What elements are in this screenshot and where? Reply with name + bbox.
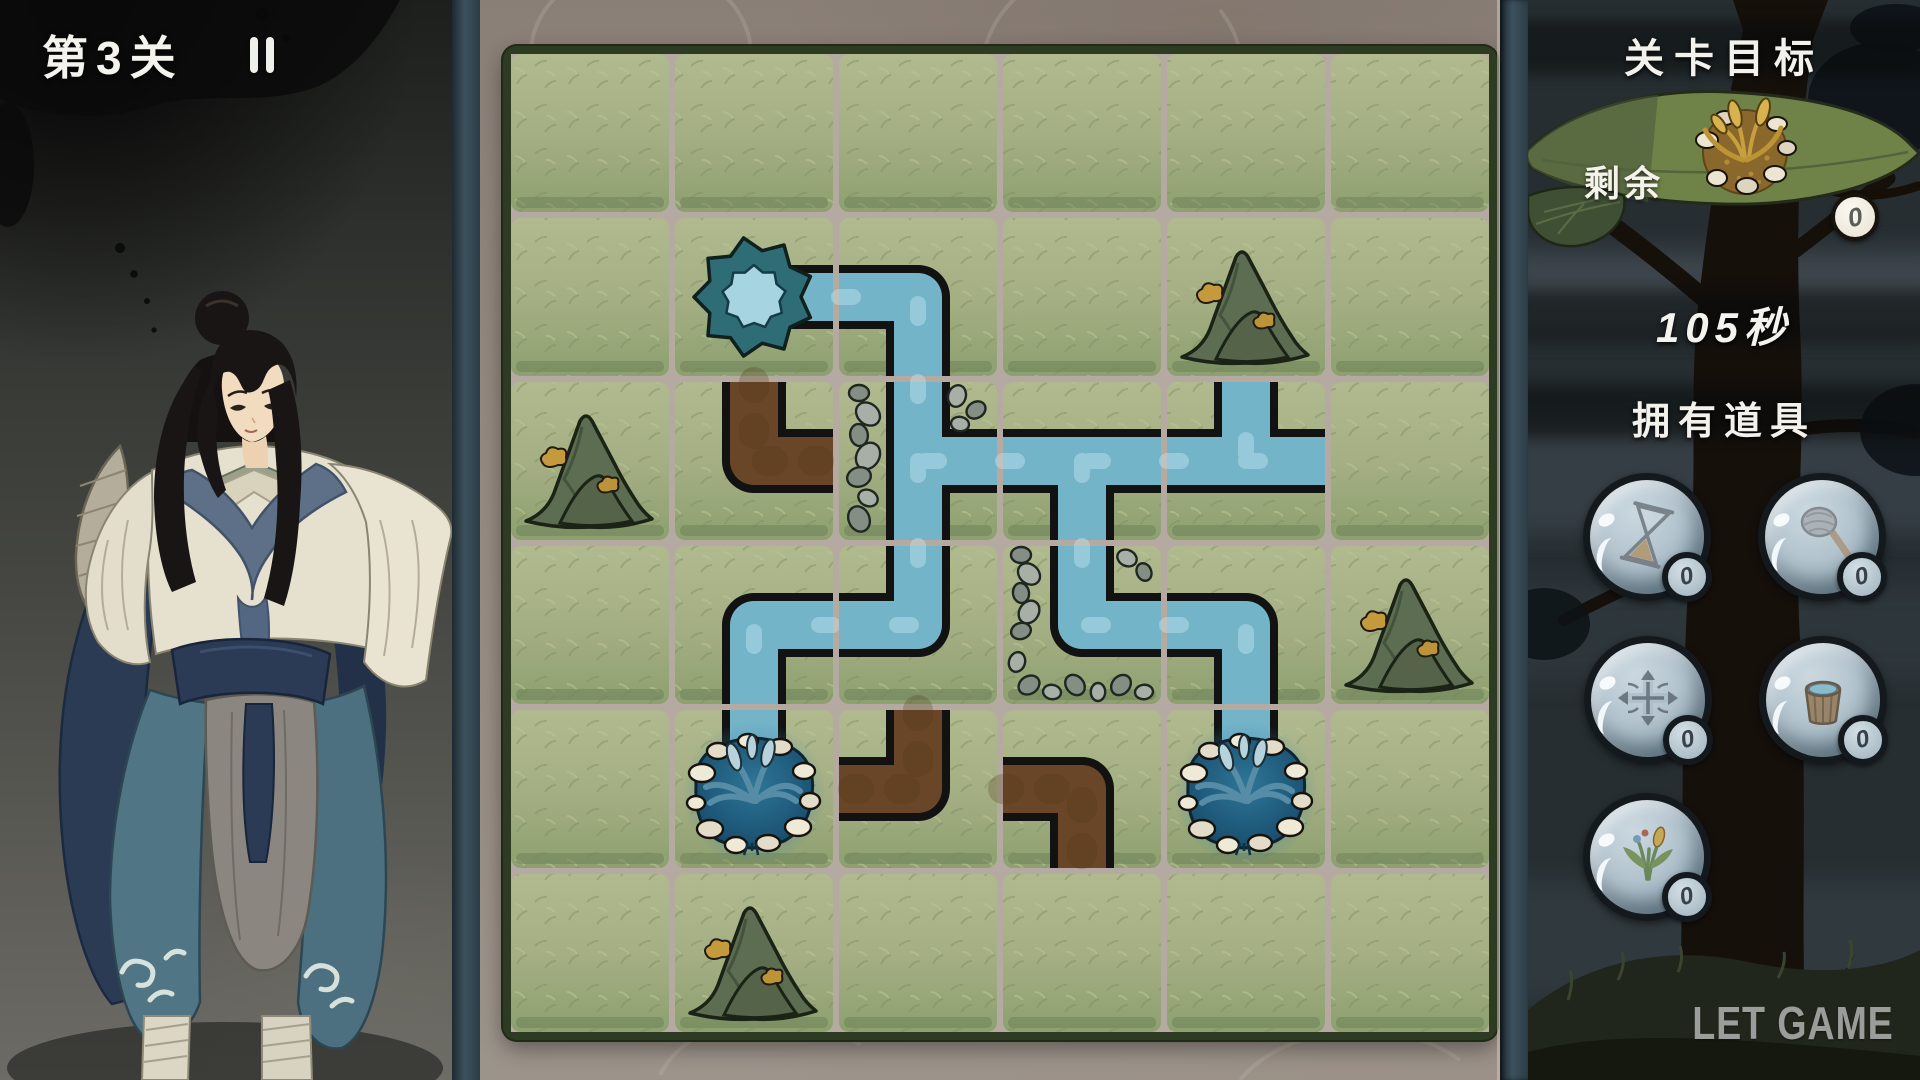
tile-r5c0-grass xyxy=(511,874,669,1032)
item-seedling[interactable]: 0 xyxy=(1583,793,1711,921)
item-count: 0 xyxy=(1677,562,1697,592)
item-count: 0 xyxy=(1852,562,1872,592)
tile-r0c0-grass xyxy=(511,54,669,212)
items-title: 拥有道具 xyxy=(1528,390,1920,445)
remaining-count-badge: 0 xyxy=(1831,193,1879,241)
item-count-badge: 0 xyxy=(1662,872,1712,922)
goal-panel: 关卡目标 剩余 0 105秒 拥有道具 0 0 xyxy=(1528,0,1920,1080)
game-screen: 第3关 xyxy=(0,0,1920,1080)
pause-icon xyxy=(250,37,258,73)
tile-r1c5-grass xyxy=(1331,218,1489,376)
item-count-badge: 0 xyxy=(1663,715,1713,765)
level-title: 第3关 xyxy=(42,22,184,88)
tile-r3c0-grass xyxy=(511,546,669,704)
tile-r4c5-grass xyxy=(1331,710,1489,868)
panel-divider-left xyxy=(452,0,480,1080)
tile-r1c3-grass xyxy=(1003,218,1161,376)
tile-r0c5-grass xyxy=(1331,54,1489,212)
tile-r0c3-grass xyxy=(1003,54,1161,212)
puzzle-board-frame xyxy=(503,46,1497,1040)
watermark: LET GAME xyxy=(1693,996,1894,1050)
tile-r5c3-grass xyxy=(1003,874,1161,1032)
puzzle-board xyxy=(511,54,1489,1032)
remaining-count: 0 xyxy=(1845,200,1866,233)
tile-r5c2-grass xyxy=(839,874,997,1032)
tile-r0c2-grass xyxy=(839,54,997,212)
tile-r2c5-grass xyxy=(1331,382,1489,540)
pause-icon xyxy=(266,37,274,73)
item-count: 0 xyxy=(1678,725,1698,755)
hair-bun xyxy=(195,291,249,345)
game-area xyxy=(480,0,1500,1080)
pause-button[interactable] xyxy=(238,30,286,78)
item-count: 0 xyxy=(1677,882,1697,912)
remaining-label: 剩余 xyxy=(1564,155,1684,207)
timer: 105秒 xyxy=(1528,294,1920,355)
tile-r0c1-grass xyxy=(675,54,833,212)
tile-r5c5-grass xyxy=(1331,874,1489,1032)
tile-r0c4-grass xyxy=(1167,54,1325,212)
tile-r4c0-grass xyxy=(511,710,669,868)
item-hourglass[interactable]: 0 xyxy=(1583,473,1711,601)
left-panel: 第3关 xyxy=(0,0,452,1080)
item-water-bucket[interactable]: 0 xyxy=(1759,636,1887,764)
goal-title: 关卡目标 xyxy=(1528,26,1920,84)
item-mallet[interactable]: 0 xyxy=(1758,473,1886,601)
item-count-badge: 0 xyxy=(1837,552,1887,602)
item-count-badge: 0 xyxy=(1838,715,1888,765)
tile-r1c0-grass xyxy=(511,218,669,376)
item-count-badge: 0 xyxy=(1662,552,1712,602)
character-illustration xyxy=(0,0,452,1080)
tile-r5c4-grass xyxy=(1167,874,1325,1032)
item-direction-arrows[interactable]: 0 xyxy=(1584,636,1712,764)
panel-divider-right xyxy=(1500,0,1528,1080)
item-count: 0 xyxy=(1853,725,1873,755)
